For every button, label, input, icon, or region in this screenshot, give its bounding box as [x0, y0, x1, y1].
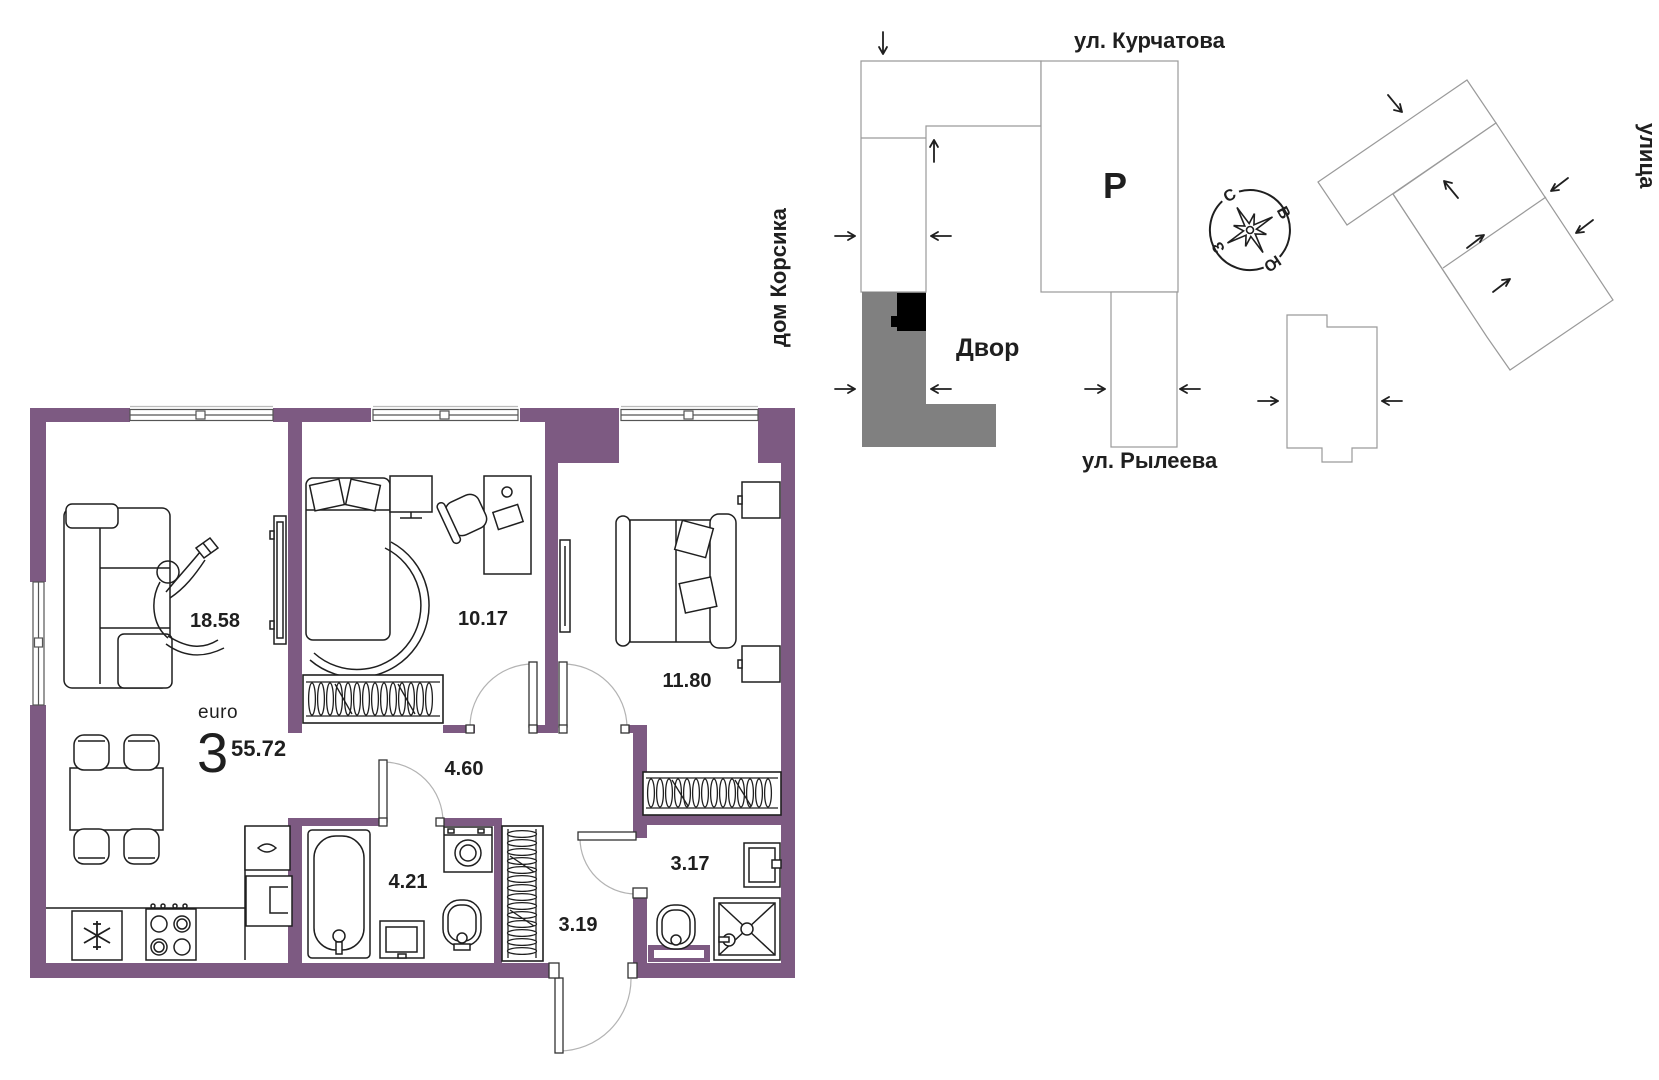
- bed-footboard: [616, 516, 630, 646]
- house-label: дом Корсика: [766, 207, 791, 347]
- door-leaf-wc: [578, 832, 636, 840]
- door-arc-bedroom-master: [563, 664, 627, 727]
- arrow-down-right-icon: [1388, 95, 1402, 112]
- arrow-right-icon: [1258, 397, 1278, 405]
- unit-total-area: 55.72: [231, 736, 286, 761]
- site-plan: С В Ю З ул. Курчатова ул. Рылеева дом Ко…: [766, 28, 1659, 473]
- dining-table: [70, 768, 163, 830]
- shower-cabin: [714, 898, 780, 960]
- door-leaf-bedroom-master: [559, 662, 567, 727]
- door-arc-entry: [559, 979, 631, 1051]
- washbasin: [744, 843, 781, 887]
- stove: [146, 904, 196, 960]
- building-parking-wing: [1111, 292, 1177, 447]
- building-small: [1287, 315, 1377, 462]
- plan-canvas: 18.58 10.17 11.80 4.60 4.21 3.19 3.17 eu…: [0, 0, 1659, 1080]
- desk-chair: [436, 487, 492, 544]
- vanity-table: [380, 921, 424, 958]
- arrow-left-icon: [931, 385, 951, 393]
- street-top-label: ул. Курчатова: [1074, 28, 1226, 53]
- bedroom-small-furniture: [303, 476, 531, 723]
- building-korsika-outline: [861, 61, 1041, 292]
- room-label-wc: 3.17: [671, 853, 710, 875]
- desk: [484, 476, 531, 574]
- monitor-stand: [390, 476, 432, 518]
- compass-east: В: [1273, 204, 1293, 222]
- street-right-label: улица: [1635, 123, 1659, 189]
- sofa-ottoman: [118, 634, 172, 688]
- room-label-bedroom-master: 11.80: [663, 670, 712, 692]
- arrow-down-left-icon: [1576, 220, 1593, 233]
- arrow-right-icon: [835, 385, 855, 393]
- arrow-left-icon: [931, 232, 951, 240]
- door-leaf-bathroom: [379, 760, 387, 822]
- compass-north: С: [1221, 186, 1240, 207]
- arrow-right-icon: [1085, 385, 1105, 393]
- door-arc-wc: [580, 838, 636, 894]
- arrow-right-icon: [835, 232, 855, 240]
- tv-panel-master: [560, 540, 570, 632]
- washing-machine: [444, 827, 492, 872]
- unit-type-caption: euro 3 55.72: [197, 702, 286, 784]
- living-room-furniture: [46, 504, 292, 960]
- arrow-left-icon: [1382, 397, 1402, 405]
- arrow-down-left-icon: [1551, 178, 1568, 191]
- bedroom-master-furniture: [560, 482, 781, 815]
- room-label-bedroom-small: 10.17: [458, 608, 508, 630]
- site-buildings: [861, 61, 1613, 462]
- door-leaf-entry: [555, 978, 563, 1053]
- arrow-down-icon: [879, 32, 887, 54]
- nightstand-top: [738, 482, 780, 518]
- street-bottom-label: ул. Рылеева: [1082, 448, 1218, 473]
- room-label-entry: 3.19: [559, 914, 598, 936]
- wardrobe-entry: [502, 826, 543, 961]
- building-korsika-highlight: [862, 292, 996, 447]
- unit-rooms-count: 3: [197, 721, 228, 784]
- bathtub: [308, 830, 370, 958]
- floor-plan: 18.58 10.17 11.80 4.60 4.21 3.19 3.17 eu…: [30, 407, 795, 1054]
- room-label-bathroom: 4.21: [389, 871, 428, 893]
- floorplan-page: 18.58 10.17 11.80 4.60 4.21 3.19 3.17 eu…: [0, 0, 1659, 1080]
- wardrobe-bedroom-small: [303, 675, 443, 723]
- kitchen-sink-cabinet: [245, 826, 292, 926]
- room-label-hallway: 4.60: [445, 758, 484, 780]
- nightstand-bottom: [738, 646, 780, 682]
- door-leaf-bedroom-small: [529, 662, 537, 727]
- wardrobe-bedroom-master: [643, 772, 781, 815]
- toilet-bathroom: [443, 900, 481, 950]
- courtyard-label: Двор: [956, 334, 1019, 362]
- arrow-up-icon: [930, 140, 938, 162]
- toilet-wc: [657, 905, 695, 949]
- fridge: [72, 911, 122, 960]
- room-label-living: 18.58: [190, 610, 240, 632]
- parking-label: Р: [1103, 165, 1127, 206]
- entry-hall-furniture: [502, 826, 543, 961]
- bed-headboard: [710, 514, 736, 648]
- door-arc-bedroom-small: [470, 664, 533, 727]
- compass-icon: С В Ю З: [1209, 186, 1293, 275]
- door-arc-bathroom: [383, 762, 443, 822]
- unit-type-euro: euro: [198, 702, 238, 723]
- wc-niche: [654, 950, 704, 958]
- tv-panel-living: [270, 516, 286, 644]
- arrow-left-icon: [1180, 385, 1200, 393]
